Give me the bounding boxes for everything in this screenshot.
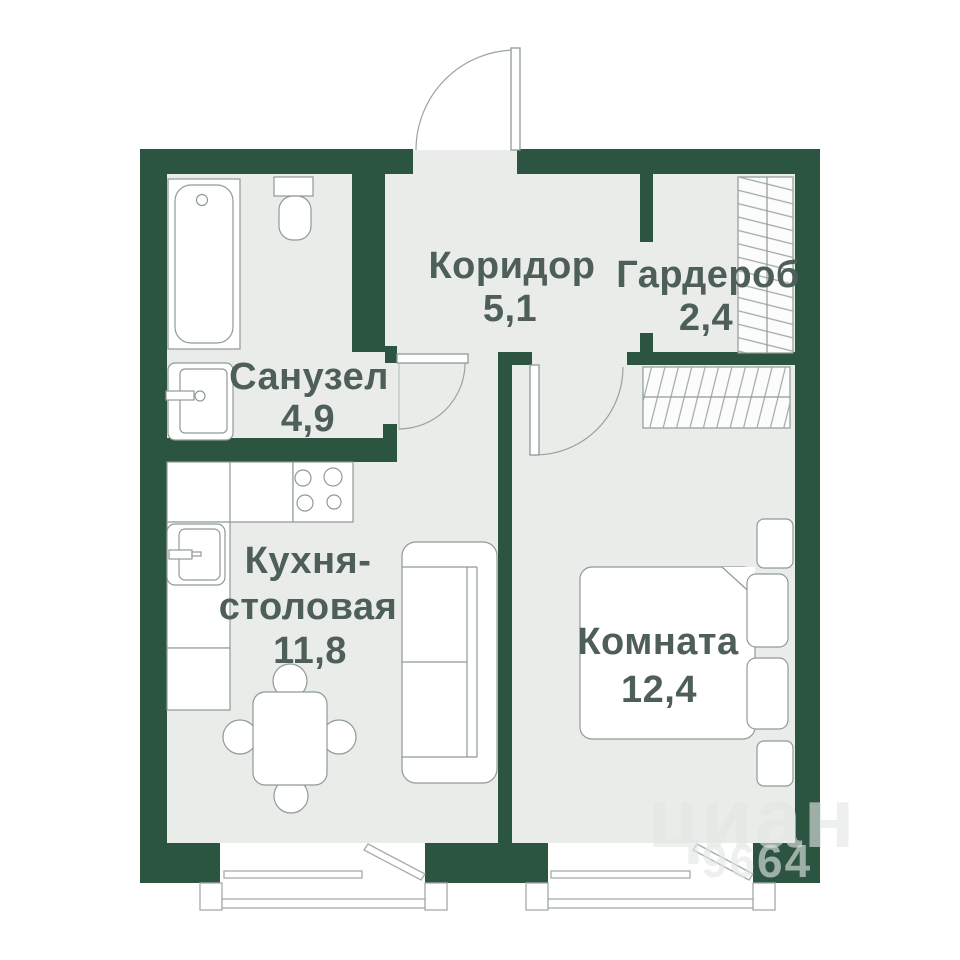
floorplan-canvas: Коридор 5,1 Гардероб 2,4 Санузел 4,9 Кух…	[0, 0, 960, 960]
wall-bottom-b	[425, 843, 548, 883]
kitchen-area: 11,8	[273, 630, 347, 672]
room-window-sill	[551, 871, 690, 878]
wall-wardrobe-divider-upper	[640, 174, 653, 242]
wardrobe-label: Гардероб	[616, 254, 800, 296]
balcony-post	[753, 883, 775, 910]
wall-wardrobe-divider-lower	[640, 333, 653, 352]
watermark: циан 9664	[648, 771, 857, 887]
sofa-icon	[402, 542, 497, 783]
wall-bathroom-bottom-step	[383, 424, 397, 438]
nightstand-icon	[757, 519, 793, 568]
wall-bathroom-right	[352, 174, 385, 352]
wall-room-top	[627, 352, 795, 365]
room-area: 12,4	[621, 669, 697, 711]
pillow-icon	[747, 658, 788, 729]
kitchen-label-line1: Кухня-	[245, 540, 372, 582]
wall-central-cap	[498, 352, 532, 365]
stove-icon	[293, 462, 353, 522]
wardrobe-area: 2,4	[679, 297, 733, 339]
bathroom-area: 4,9	[281, 398, 335, 440]
pillow-icon	[747, 574, 788, 647]
kitchen-sink-icon	[167, 524, 225, 585]
corridor-area: 5,1	[483, 288, 537, 330]
corridor-label: Коридор	[428, 245, 595, 287]
watermark-number: 9664	[702, 835, 812, 887]
entrance-door-icon	[416, 48, 520, 150]
bathroom-sink-icon	[166, 363, 233, 440]
balcony-rail	[548, 899, 753, 908]
chair-icon	[223, 720, 257, 754]
fridge-icon	[167, 648, 230, 710]
balcony-rail	[222, 899, 425, 908]
dining-table-icon	[253, 692, 327, 785]
closet-icon	[643, 367, 790, 428]
wall-central	[498, 365, 512, 843]
bathroom-label: Санузел	[229, 356, 389, 398]
wall-bathroom-bottom	[140, 438, 397, 462]
wall-top-left	[140, 149, 413, 174]
bathtub-icon	[168, 179, 240, 349]
kitchen-window-pane-icon	[364, 844, 425, 880]
balcony-post	[526, 883, 548, 910]
wall-left	[140, 149, 167, 883]
wall-top-right	[517, 149, 820, 174]
balcony-post	[425, 883, 447, 910]
toilet-icon	[274, 177, 313, 240]
kitchen-label-line2: столовая	[219, 586, 398, 628]
balcony-post	[200, 883, 222, 910]
floorplan-svg: Коридор 5,1 Гардероб 2,4 Санузел 4,9 Кух…	[0, 0, 960, 960]
kitchen-window-sill	[224, 871, 362, 878]
room-label: Комната	[577, 621, 739, 663]
wall-bottom-a	[140, 843, 220, 883]
